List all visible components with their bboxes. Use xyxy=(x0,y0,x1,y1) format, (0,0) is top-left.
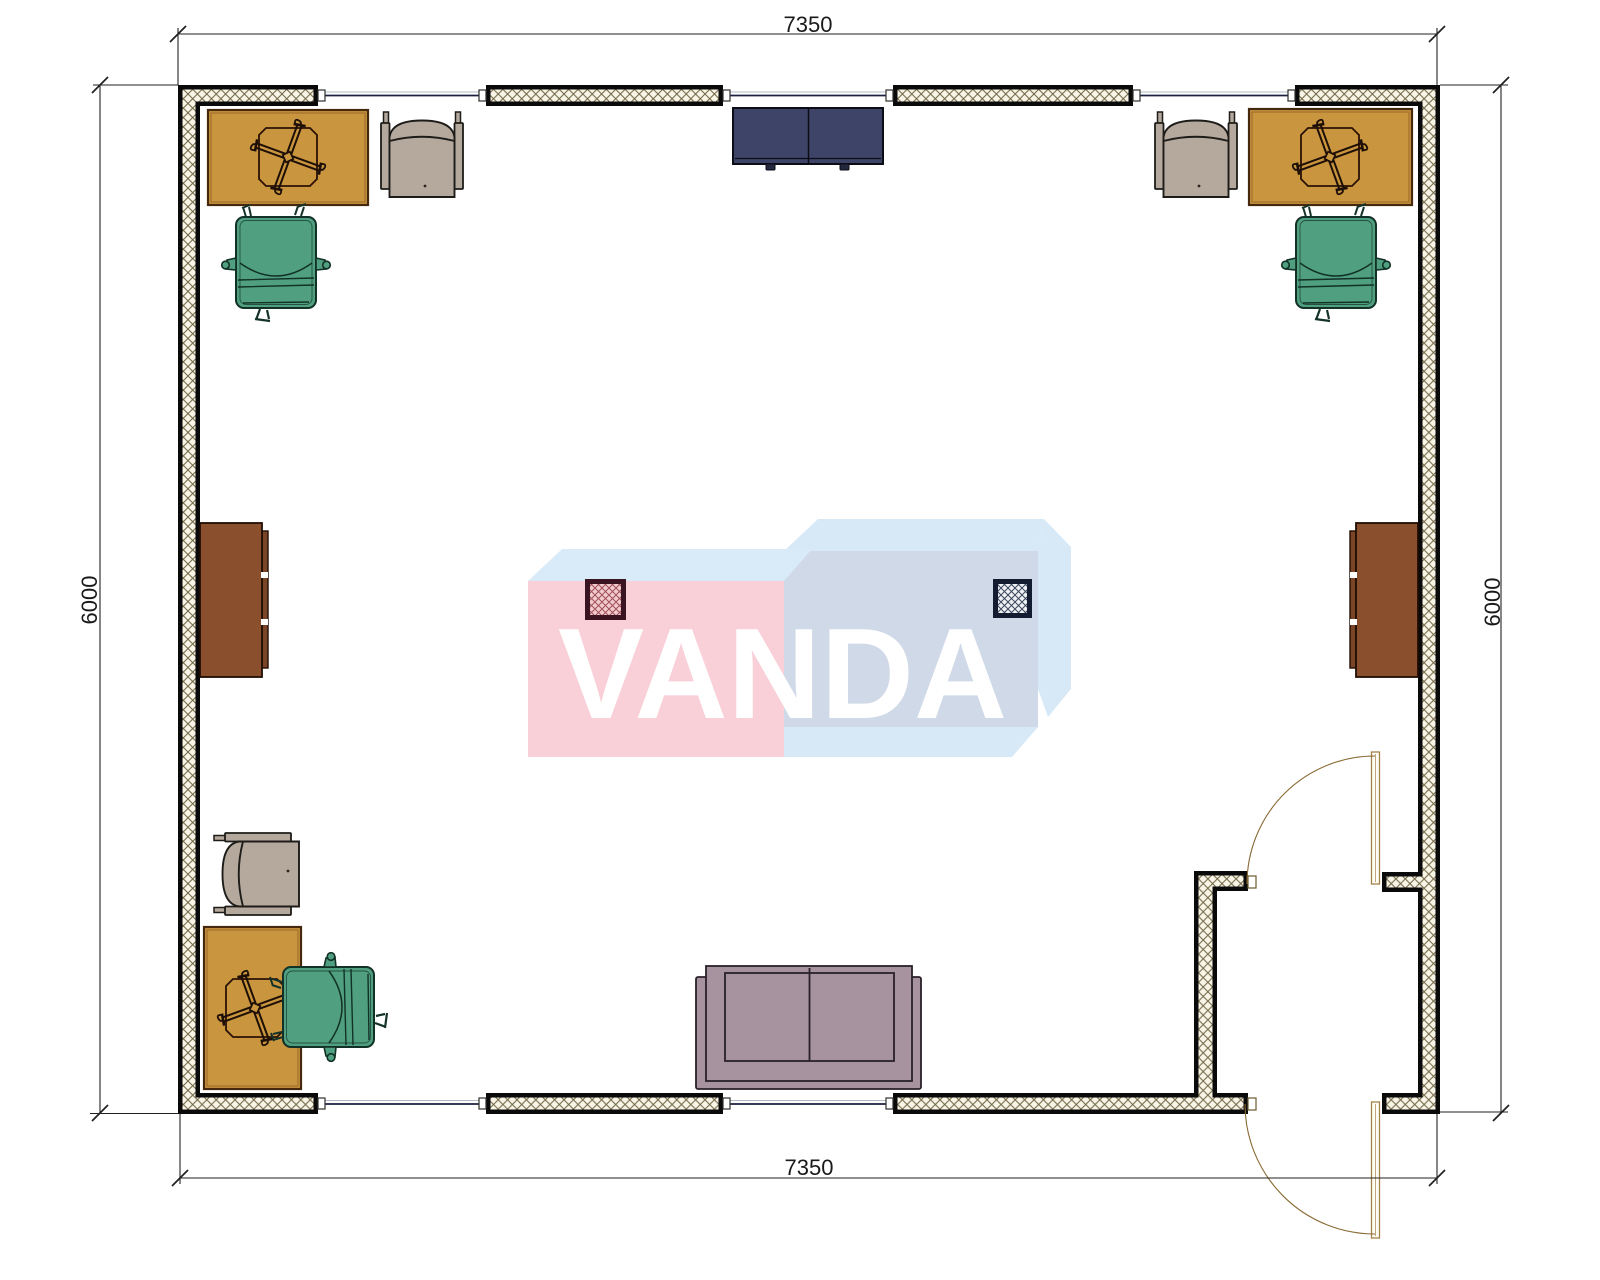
svg-text:6000: 6000 xyxy=(77,576,102,625)
svg-text:7350: 7350 xyxy=(784,12,833,37)
svg-text:7350: 7350 xyxy=(785,1155,834,1180)
svg-text:VANDA: VANDA xyxy=(558,602,1007,746)
svg-text:6000: 6000 xyxy=(1480,578,1505,627)
